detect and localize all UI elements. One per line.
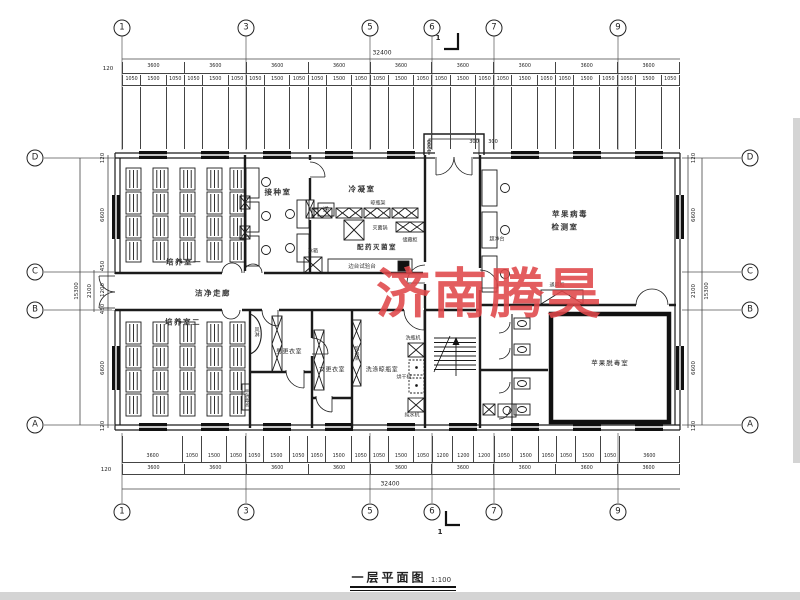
room-label-culture1: 培养室一	[166, 257, 202, 268]
dim-top-edge: 120	[103, 66, 114, 72]
room-label-condensing: 冷凝室	[349, 184, 376, 195]
dim-comb-bottom	[122, 436, 680, 452]
equip-label-fridge: 冰箱	[308, 248, 318, 255]
section-mark-top-label: 1	[436, 34, 441, 42]
drawing-scale: 1:100	[431, 576, 451, 584]
dim-row-top-fine: 1050150010501050150010501050150010501050…	[122, 75, 680, 86]
dim-bottom-total: 32400	[380, 481, 399, 488]
inoculation-benches	[240, 168, 309, 266]
right-edge-strip	[793, 118, 800, 463]
axis-bubble-bottom-1: 1	[114, 504, 131, 521]
dim-row-bottom-fine: 3600105015001050105015001050105015001050…	[122, 452, 680, 463]
section-mark-bottom-label: 1	[438, 528, 443, 536]
room-label-corridor: 洁净走廊	[195, 288, 231, 299]
equip-label-bottle-rack2: 晾瓶架	[354, 346, 361, 361]
axis-bubble-right-A: A	[742, 417, 759, 434]
axis-bubble-top-9: 9	[610, 20, 627, 37]
equip-label-air-shower: 风淋	[254, 327, 261, 337]
axis-bubble-bottom-5: 5	[362, 504, 379, 521]
dim-right-edge-bottom: 120	[691, 421, 697, 432]
equip-label-bottle-washer: 洗瓶机	[405, 335, 420, 342]
axis-bubble-bottom-6: 6	[424, 504, 441, 521]
axis-bubble-bottom-3: 3	[238, 504, 255, 521]
watermark-text: 济南腾昊	[376, 250, 604, 329]
dim-right-room-top: 6600	[691, 208, 697, 222]
dim-left-total: 15300	[74, 282, 80, 300]
dim-left-edge-bottom: 120	[100, 421, 106, 432]
room-label-inoculation: 接种室	[265, 187, 292, 198]
axis-bubble-left-A: A	[27, 417, 44, 434]
dim-left-seg2: 1200	[100, 283, 106, 297]
dim-row-top-bays: 360036003600360036003600360036003600	[122, 62, 680, 74]
room-label-detox: 苹果脱毒室	[591, 357, 629, 367]
equip-label-clean-bench: 超净台	[489, 236, 504, 243]
dim-left-edge-top: 120	[100, 153, 106, 164]
dim-left-room-bottom: 6600	[100, 361, 106, 375]
dim-left-room-top: 6600	[100, 208, 106, 222]
bottom-edge-strip	[0, 592, 800, 600]
dim-porch-width: 1200	[427, 140, 433, 153]
floorplan-page: 1 3 5 6 7 9 1 3 5 6 7 9 D C B A D C B A …	[0, 0, 800, 600]
equip-label-bottle-rack: 晾瓶架	[370, 200, 385, 207]
axis-bubble-left-D: D	[27, 150, 44, 167]
culture2-racks	[126, 322, 245, 416]
equip-label-hand-wash: 手消毒池	[243, 389, 249, 407]
equip-label-cabinet: 储藏柜	[402, 237, 417, 244]
dim-right-edge-top: 120	[691, 153, 697, 164]
title-underline-thin	[350, 590, 456, 591]
title-underline-thick	[350, 586, 456, 588]
room-label-virus-line1: 苹果病毒	[552, 209, 588, 220]
axis-bubble-right-C: C	[742, 264, 759, 281]
wc-fixtures	[483, 318, 530, 417]
equip-label-sterilizer: 灭菌锅	[372, 225, 387, 232]
axis-bubble-top-1: 1	[114, 20, 131, 37]
room-label-locker-m: 男更衣室	[276, 347, 302, 356]
drawing-title: 一层平面图	[351, 569, 426, 586]
room-label-virus-line2: 检测室	[552, 222, 579, 233]
axis-bubble-bottom-7: 7	[486, 504, 503, 521]
dim-left-seg3: 450	[100, 304, 106, 315]
axis-bubble-top-7: 7	[486, 20, 503, 37]
dim-top-total: 32400	[372, 50, 391, 57]
room-label-locker-f: 女更衣室	[319, 365, 345, 374]
equip-label-dryer: 烘干机	[396, 374, 411, 381]
equip-label-water-purifier: 纯水机	[404, 412, 419, 419]
axis-bubble-right-D: D	[742, 150, 759, 167]
dim-porch-a: 300	[469, 139, 479, 145]
equip-label-pass: 递	[323, 205, 329, 214]
dim-right-mid: 2100	[691, 284, 697, 298]
axis-bubble-left-B: B	[27, 302, 44, 319]
room-label-culture2: 培养室二	[165, 317, 201, 328]
dim-porch-b: 300	[488, 139, 498, 145]
dim-right-total: 15300	[704, 282, 710, 300]
dim-right-room-bottom: 6600	[691, 361, 697, 375]
axis-bubble-bottom-9: 9	[610, 504, 627, 521]
dim-row-bottom-bays: 360036003600360036003600360036003600	[122, 464, 680, 475]
dim-comb-top	[122, 87, 680, 149]
culture1-racks	[126, 168, 245, 262]
dim-bottom-edge: 120	[101, 467, 112, 473]
axis-bubble-top-3: 3	[238, 20, 255, 37]
room-label-washing: 洗涤晾瓶室	[366, 365, 399, 374]
dim-left-seg1: 450	[100, 261, 106, 272]
dim-left-mid: 2100	[87, 284, 93, 298]
detox-room-walls	[551, 314, 669, 422]
axis-bubble-left-C: C	[27, 264, 44, 281]
axis-bubble-top-5: 5	[362, 20, 379, 37]
axis-bubble-right-B: B	[742, 302, 759, 319]
equip-label-side-bench: 边台试验台	[348, 262, 376, 270]
